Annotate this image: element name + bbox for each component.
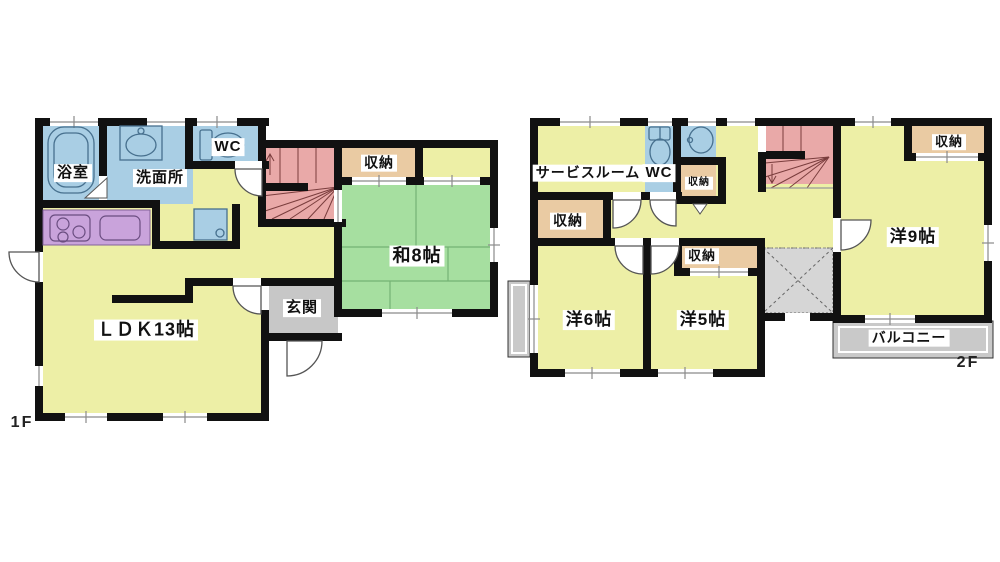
room-label-storage-small-2f: 収納 <box>685 177 713 190</box>
room-label-yo9-2f: 洋9帖 <box>887 227 939 247</box>
room-label-service-2f: サービスルーム <box>533 165 644 182</box>
room-label-wc-2f: WC <box>643 164 676 182</box>
floorplan-page: 浴室 洗面所 WC 収納 和8帖 玄関 ＬＤＫ13帖 1F サービスルーム WC… <box>0 0 1000 562</box>
room-label-yo6-2f: 洋6帖 <box>563 310 615 330</box>
floorplan-canvas <box>0 0 1000 562</box>
floor-1f <box>9 116 500 423</box>
room-label-wash-1f: 洗面所 <box>133 169 187 187</box>
room-label-yo5-2f: 洋5帖 <box>677 310 729 330</box>
room-label-wc-1f: WC <box>212 138 245 156</box>
room-label-storage-mid-2f: 収納 <box>685 248 719 264</box>
room-label-genkan-1f: 玄関 <box>283 299 321 317</box>
room-label-storage-1f: 収納 <box>361 155 397 172</box>
room-label-ldk-1f: ＬＤＫ13帖 <box>94 320 198 341</box>
room-label-storage-tr-2f: 収納 <box>932 134 966 150</box>
floor-tag-2f: 2F <box>957 354 980 372</box>
room-label-bath-1f: 浴室 <box>54 164 92 182</box>
washer-pan-icon <box>194 209 227 240</box>
floor-tag-1f: 1F <box>11 414 34 432</box>
room-label-washitsu-1f: 和8帖 <box>389 246 444 267</box>
kitchen-1f <box>43 210 150 245</box>
room-label-balcony-2f: バルコニー <box>869 330 950 347</box>
room-label-storage-left-2f: 収納 <box>550 213 586 230</box>
